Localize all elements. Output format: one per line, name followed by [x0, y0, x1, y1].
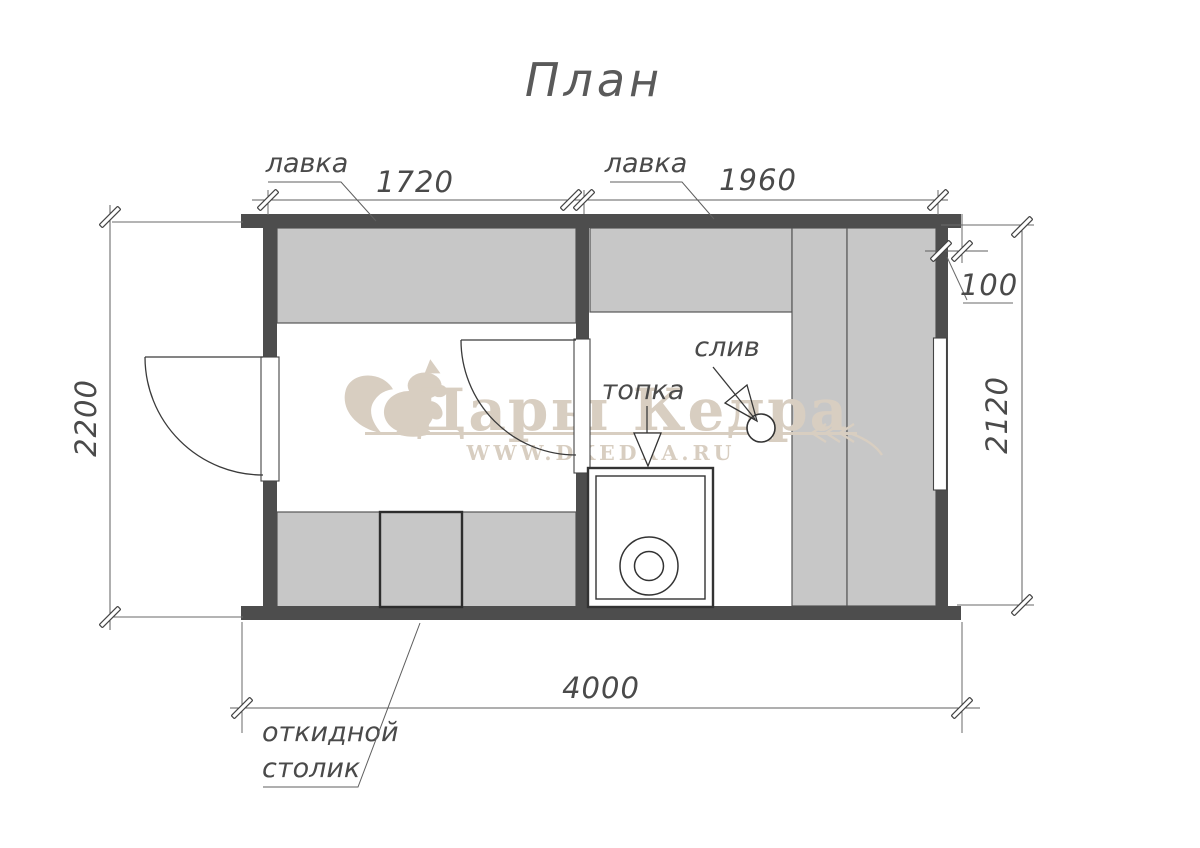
- bench-left-room-top: [277, 228, 576, 323]
- watermark-url: WWW.DKEDRA.RU: [465, 441, 735, 465]
- folding-table: [380, 512, 462, 607]
- interior-door-opening: [574, 339, 590, 473]
- entrance-door-swing-arc: [145, 357, 263, 475]
- dim-right-section-width: 1960: [719, 163, 797, 197]
- bench-right-room-top: [590, 228, 792, 312]
- floor-plan-page: Дары Кедра WWW.DKEDRA.RU: [0, 0, 1200, 848]
- entrance-door-opening: [261, 357, 279, 481]
- bench-left-label: лавка: [265, 148, 349, 179]
- watermark-underline: [365, 432, 857, 435]
- dim-wall-offset: 100: [960, 268, 1018, 302]
- window-right-wall: [934, 338, 947, 490]
- bench-left-room-bottom-2: [462, 512, 576, 607]
- stove-chimney-inner: [635, 552, 664, 581]
- floor-plan-drawing: Дары Кедра WWW.DKEDRA.RU: [0, 0, 1200, 848]
- drain-label: слив: [694, 332, 760, 363]
- wall-top: [241, 214, 961, 228]
- folding-table-label-line1: откидной: [262, 717, 399, 748]
- bench-right-label: лавка: [604, 148, 688, 179]
- furnace-label: топка: [602, 375, 685, 406]
- dim-left-section-width: 1720: [376, 165, 454, 199]
- stove: [588, 468, 713, 607]
- folding-table-label-line2: столик: [262, 753, 361, 784]
- page-title: План: [525, 53, 663, 107]
- dim-overall-depth: 2200: [69, 379, 103, 457]
- dim-overall-width: 4000: [562, 671, 640, 705]
- bench-right-room-side-outer: [847, 228, 936, 606]
- dim-inner-depth: 2120: [980, 376, 1014, 454]
- bench-left-room-bottom-1: [277, 512, 380, 607]
